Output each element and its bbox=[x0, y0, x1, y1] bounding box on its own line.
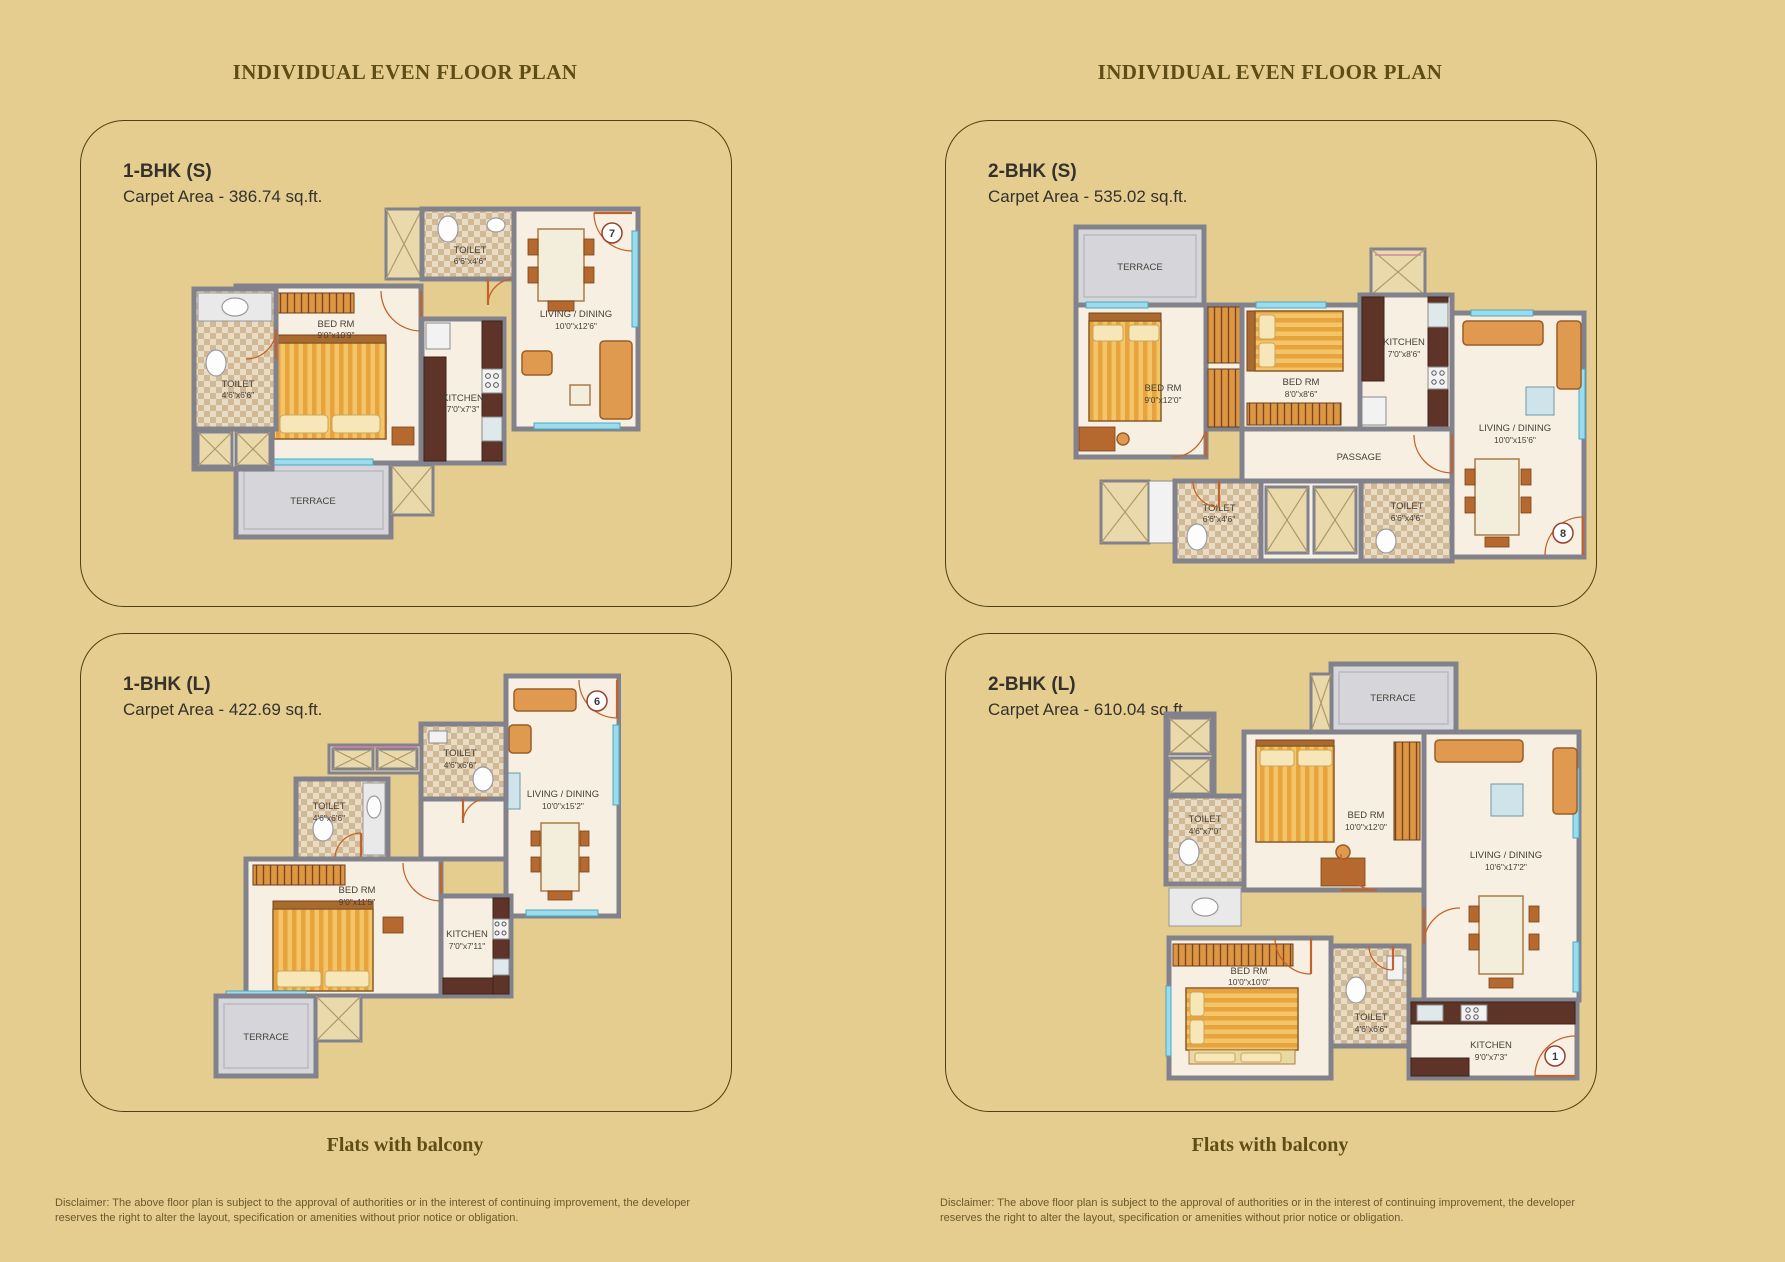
svg-text:9'0"x10'9": 9'0"x10'9" bbox=[317, 330, 354, 340]
room-kitchen: KITCHEN 7'0"x7'11" bbox=[441, 896, 511, 996]
svg-text:KITCHEN: KITCHEN bbox=[1383, 337, 1425, 348]
room-living-dining: LIVING / DINING 10'0"x15'6" 8 bbox=[1452, 310, 1585, 557]
svg-text:7'0"x8'6": 7'0"x8'6" bbox=[1388, 349, 1420, 359]
dressing-area bbox=[1261, 481, 1361, 561]
floor-plan-drawing-2bhk-s: TERRACE BED RM 9'0"x12'0" bbox=[1071, 219, 1591, 586]
duct bbox=[1166, 714, 1214, 796]
svg-text:BED RM: BED RM bbox=[1231, 966, 1268, 977]
svg-text:10'0"x10'0": 10'0"x10'0" bbox=[1228, 977, 1270, 987]
svg-text:10'0"x12'6": 10'0"x12'6" bbox=[555, 321, 597, 331]
room-terrace: TERRACE bbox=[1331, 664, 1456, 735]
svg-text:KITCHEN: KITCHEN bbox=[1470, 1040, 1512, 1051]
tagline-left: Flats with balcony bbox=[80, 1134, 730, 1157]
svg-text:LIVING / DINING: LIVING / DINING bbox=[1470, 850, 1542, 861]
svg-text:6'6"x4'6": 6'6"x4'6" bbox=[1391, 513, 1423, 523]
svg-text:BED RM: BED RM bbox=[1145, 383, 1182, 394]
disclaimer-text-right: Disclaimer: The above floor plan is subj… bbox=[940, 1196, 1580, 1225]
svg-text:LIVING / DINING: LIVING / DINING bbox=[540, 309, 612, 320]
panel-title: 2-BHK (S) Carpet Area - 535.02 sq.ft. bbox=[988, 161, 1187, 207]
floor-plan-drawing-1bhk-l: LIVING / DINING 10'0"x15'2" 6 TOILET 4'6… bbox=[211, 661, 621, 1091]
duct bbox=[194, 429, 272, 469]
svg-text:4'6"x6'6": 4'6"x6'6" bbox=[222, 390, 254, 400]
svg-text:9'0"x7'3": 9'0"x7'3" bbox=[1475, 1052, 1507, 1062]
duct bbox=[391, 465, 433, 515]
room-toilet-bottom: TOILET 4'6"x6'6" bbox=[1331, 946, 1409, 1046]
room-living-dining: LIVING / DINING 10'0"x15'2" 6 bbox=[506, 676, 619, 916]
svg-text:10'0"x15'2": 10'0"x15'2" bbox=[542, 801, 584, 811]
svg-text:LIVING / DINING: LIVING / DINING bbox=[527, 789, 599, 800]
svg-text:10'0"x12'0": 10'0"x12'0" bbox=[1345, 822, 1387, 832]
panel-2bhk-l: 2-BHK (L) Carpet Area - 610.04 sq.ft. TE… bbox=[945, 633, 1597, 1112]
room-bedroom-1: BED RM 10'0"x12'0" bbox=[1244, 732, 1424, 890]
room-toilet-2: TOILET 6'6"x4'6" bbox=[1361, 481, 1452, 561]
room-bedroom: BED RM 9'0"x11'5" bbox=[246, 859, 441, 996]
wardrobe-column bbox=[1206, 305, 1242, 429]
carpet-area-label: Carpet Area - 610.04 sq.ft. bbox=[988, 700, 1187, 720]
room-terrace: TERRACE bbox=[236, 463, 391, 537]
svg-text:8'0"x8'6": 8'0"x8'6" bbox=[1285, 389, 1317, 399]
room-living-dining: LIVING / DINING 10'0"x12'6" 7 bbox=[514, 209, 638, 429]
duct bbox=[316, 996, 361, 1041]
floor-plan-drawing-1bhk-s: TERRACE BED RM 9'0"x10'9" TOILET 4 bbox=[186, 201, 646, 546]
svg-text:TOILET: TOILET bbox=[443, 748, 476, 759]
svg-text:1: 1 bbox=[1552, 1051, 1558, 1063]
disclaimer-text-left: Disclaimer: The above floor plan is subj… bbox=[55, 1196, 695, 1225]
room-kitchen: KITCHEN 7'0"x8'6" bbox=[1360, 295, 1452, 429]
svg-text:TERRACE: TERRACE bbox=[290, 496, 335, 507]
duct bbox=[386, 209, 422, 279]
panel-1bhk-l: 1-BHK (L) Carpet Area - 422.69 sq.ft. LI… bbox=[80, 633, 732, 1112]
svg-text:9'0"x12'0": 9'0"x12'0" bbox=[1144, 395, 1181, 405]
unit-type-label: 2-BHK (S) bbox=[988, 161, 1187, 183]
room-living-dining: LIVING / DINING 10'6"x17'2" bbox=[1424, 732, 1579, 1000]
section-title-right: INDIVIDUAL EVEN FLOOR PLAN bbox=[945, 60, 1595, 85]
room-bedroom-1: BED RM 9'0"x12'0" bbox=[1076, 302, 1206, 457]
svg-text:BED RM: BED RM bbox=[318, 319, 355, 330]
svg-text:TOILET: TOILET bbox=[312, 801, 345, 812]
floor-plan-brochure-page: { "page": { "background": "#e5cd8f", "he… bbox=[0, 0, 1785, 1262]
carpet-area-label: Carpet Area - 535.02 sq.ft. bbox=[988, 187, 1187, 207]
unit-type-label: 2-BHK (L) bbox=[988, 674, 1187, 696]
room-toilet-1: TOILET 6'6"x4'6" bbox=[1175, 481, 1261, 561]
tagline-right: Flats with balcony bbox=[945, 1134, 1595, 1157]
room-terrace: TERRACE bbox=[1076, 227, 1204, 305]
svg-text:TERRACE: TERRACE bbox=[1117, 262, 1162, 273]
svg-text:TOILET: TOILET bbox=[1354, 1012, 1387, 1023]
svg-text:9'0"x11'5": 9'0"x11'5" bbox=[339, 897, 376, 907]
svg-text:6: 6 bbox=[594, 696, 600, 708]
svg-text:TOILET: TOILET bbox=[453, 245, 486, 256]
svg-text:TERRACE: TERRACE bbox=[243, 1032, 288, 1043]
section-title-left: INDIVIDUAL EVEN FLOOR PLAN bbox=[80, 60, 730, 85]
duct bbox=[329, 745, 421, 773]
svg-text:KITCHEN: KITCHEN bbox=[442, 393, 484, 404]
svg-text:KITCHEN: KITCHEN bbox=[446, 929, 488, 940]
svg-text:6'6"x4'6": 6'6"x4'6" bbox=[1203, 514, 1235, 524]
passage: PASSAGE bbox=[1242, 429, 1452, 481]
svg-text:7'0"x7'3": 7'0"x7'3" bbox=[447, 404, 479, 414]
svg-text:7: 7 bbox=[609, 228, 615, 240]
svg-text:TOILET: TOILET bbox=[1390, 501, 1423, 512]
svg-text:PASSAGE: PASSAGE bbox=[1337, 452, 1382, 463]
svg-text:4'6"x6'6": 4'6"x6'6" bbox=[313, 813, 345, 823]
unit-type-label: 1-BHK (S) bbox=[123, 161, 322, 183]
room-kitchen: KITCHEN 9'0"x7'3" 1 bbox=[1409, 1000, 1577, 1078]
svg-text:BED RM: BED RM bbox=[339, 885, 376, 896]
svg-text:8: 8 bbox=[1560, 528, 1566, 540]
svg-text:LIVING / DINING: LIVING / DINING bbox=[1479, 423, 1551, 434]
duct bbox=[1371, 249, 1425, 295]
svg-text:10'6"x17'2": 10'6"x17'2" bbox=[1485, 862, 1527, 872]
svg-text:10'0"x15'6": 10'0"x15'6" bbox=[1494, 435, 1536, 445]
room-terrace: TERRACE bbox=[216, 991, 316, 1076]
duct bbox=[1311, 674, 1331, 732]
room-kitchen: KITCHEN 7'0"x7'3" bbox=[422, 319, 504, 463]
panel-2bhk-s: 2-BHK (S) Carpet Area - 535.02 sq.ft. TE… bbox=[945, 120, 1597, 607]
panel-1bhk-s: 1-BHK (S) Carpet Area - 386.74 sq.ft. TE… bbox=[80, 120, 732, 607]
room-toilet-top: TOILET 6'6"x4'6" bbox=[422, 209, 514, 305]
panel-title: 2-BHK (L) Carpet Area - 610.04 sq.ft. bbox=[988, 674, 1187, 720]
svg-text:TERRACE: TERRACE bbox=[1370, 693, 1415, 704]
room-bedroom-2: BED RM 10'0"x10'0" bbox=[1166, 938, 1331, 1078]
svg-text:7'0"x7'11": 7'0"x7'11" bbox=[449, 941, 486, 951]
svg-text:4'6"x7'0": 4'6"x7'0" bbox=[1189, 826, 1221, 836]
svg-text:4'6"x6'6": 4'6"x6'6" bbox=[444, 760, 476, 770]
svg-text:BED RM: BED RM bbox=[1348, 810, 1385, 821]
room-toilet-left: TOILET 4'6"x6'6" bbox=[194, 289, 276, 429]
svg-text:6'6"x4'6": 6'6"x4'6" bbox=[454, 256, 486, 266]
floor-plan-drawing-2bhk-l: TERRACE TOILET 4'6"x7'0" bbox=[1161, 656, 1586, 1086]
svg-text:TOILET: TOILET bbox=[1188, 814, 1221, 825]
svg-text:4'6"x6'6": 4'6"x6'6" bbox=[1355, 1024, 1387, 1034]
duct bbox=[1101, 481, 1175, 543]
svg-text:BED RM: BED RM bbox=[1283, 377, 1320, 388]
svg-text:TOILET: TOILET bbox=[221, 379, 254, 390]
room-toilet-left: TOILET 4'6"x6'6" bbox=[296, 779, 388, 859]
